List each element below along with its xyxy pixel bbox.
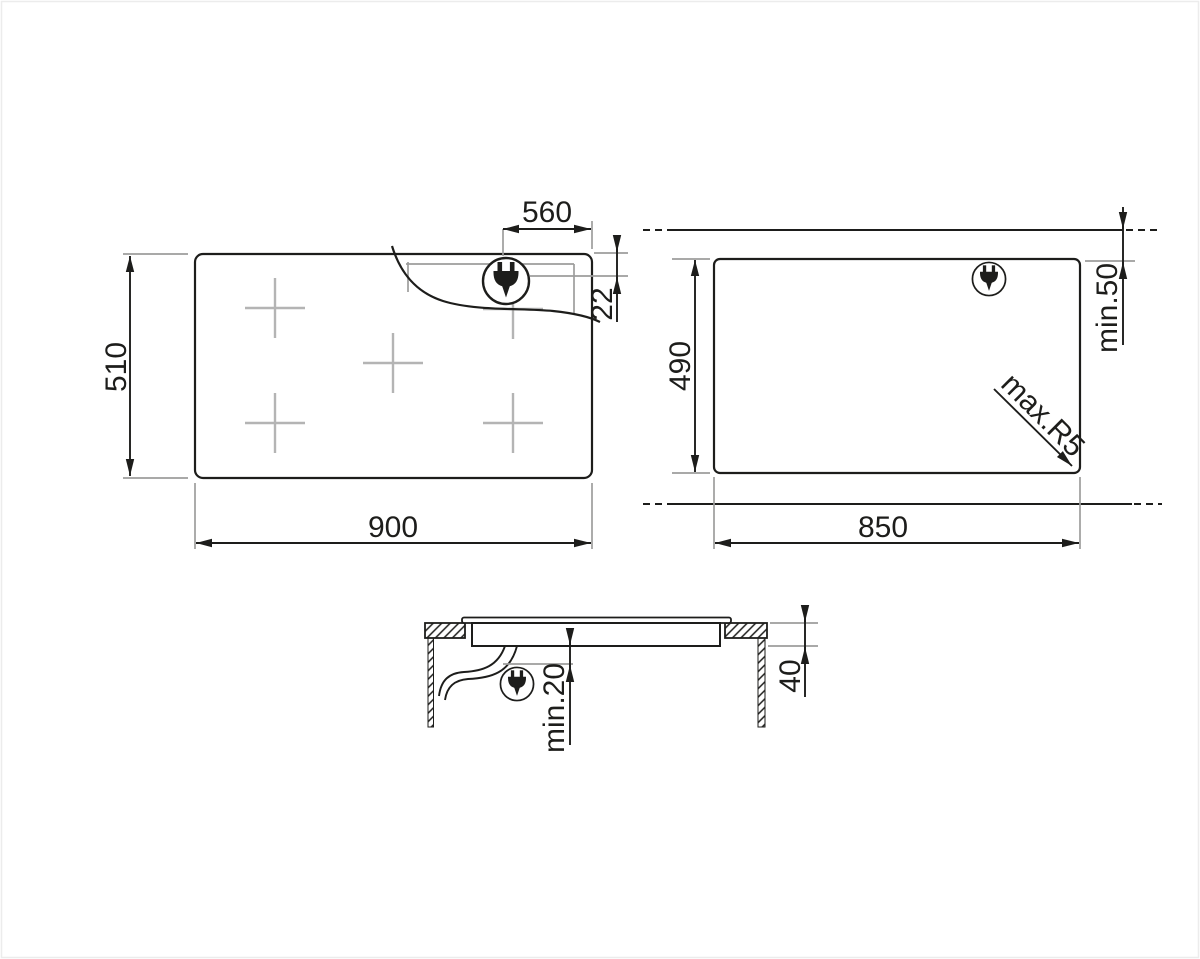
dimension-label-850: 850 — [858, 511, 908, 544]
page-border — [2, 2, 1199, 958]
dimension-label-900: 900 — [368, 511, 418, 544]
dimension-40: 40 — [768, 607, 818, 697]
dimension-label-560: 560 — [522, 196, 572, 229]
installation-drawing-page: 560 22 510 900 — [0, 0, 1200, 959]
dimension-510: 510 — [100, 254, 188, 478]
power-plug-icon — [972, 262, 1005, 295]
power-plug-icon — [500, 667, 533, 700]
dimension-label-min20: min.20 — [538, 663, 571, 753]
hob-body-section — [472, 623, 720, 646]
dimension-490: 490 — [664, 259, 710, 473]
installation-drawing: 560 22 510 900 — [0, 0, 1200, 959]
dimension-850: 850 — [714, 477, 1080, 549]
cabinet-panel-right — [758, 638, 765, 727]
cutout-outline — [714, 259, 1080, 473]
worktop-section-left — [425, 623, 465, 638]
dimension-label-22: 22 — [586, 287, 619, 320]
power-plug-icon — [483, 258, 529, 304]
cutout-plan-view: 490 850 min.50 max.R5 — [643, 207, 1162, 549]
dimension-label-490: 490 — [664, 341, 697, 391]
dimension-900: 900 — [195, 483, 592, 549]
dimension-label-40: 40 — [774, 659, 807, 692]
dimension-label-510: 510 — [100, 342, 133, 392]
dimension-min50: min.50 — [1085, 207, 1135, 353]
installation-section-view: min.20 40 — [425, 607, 818, 753]
hob-plan-view: 560 22 510 900 — [100, 196, 628, 549]
dimension-560: 560 — [503, 196, 592, 256]
cabinet-panel-left — [428, 638, 434, 727]
worktop-section-right — [725, 623, 767, 638]
dimension-label-min50: min.50 — [1091, 263, 1124, 353]
